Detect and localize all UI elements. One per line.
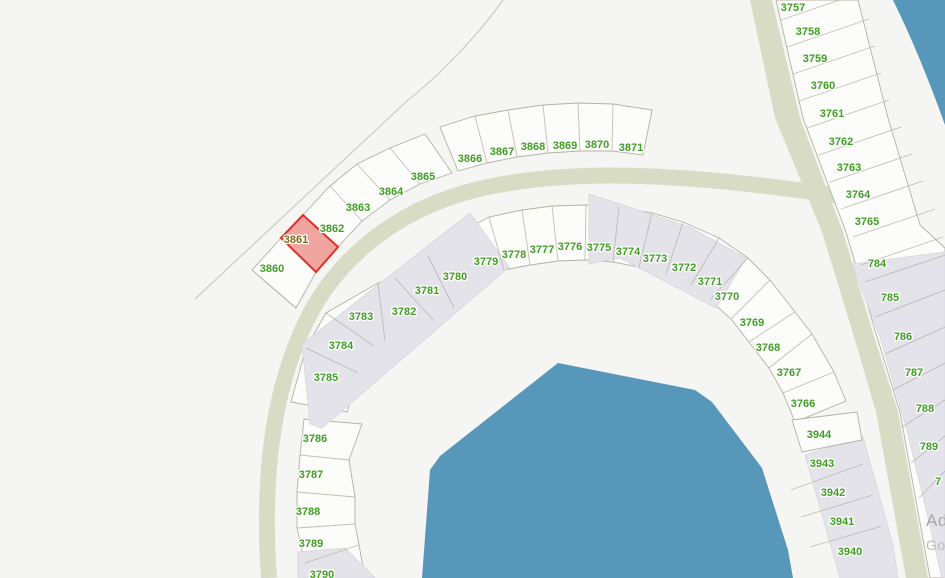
parcel-label-3784: 3784	[329, 340, 354, 352]
highlighted-parcel-label-3861[interactable]: 3861	[284, 234, 308, 246]
parcel-label-3779: 3779	[474, 256, 498, 268]
parcel-label-3780: 3780	[443, 271, 467, 283]
parcel-label-3942: 3942	[821, 487, 845, 499]
parcel-label-3864: 3864	[379, 186, 404, 198]
parcel-label-3866: 3866	[458, 153, 482, 165]
parcel-label-3766: 3766	[791, 398, 815, 410]
parcel-label-3786: 3786	[303, 433, 327, 445]
parcel-label-3789: 3789	[299, 538, 323, 550]
parcel-label-3758: 3758	[796, 26, 820, 38]
parcel-label-3860: 3860	[260, 263, 284, 275]
parcel-label-3862: 3862	[320, 223, 344, 235]
parcel-label-788: 788	[916, 403, 934, 415]
parcel-label-3775: 3775	[587, 242, 611, 254]
parcel-label-3778: 3778	[502, 249, 526, 261]
parcel-label-3871: 3871	[619, 142, 643, 154]
parcel-label-789: 789	[920, 441, 938, 453]
parcel-label-3781: 3781	[415, 285, 439, 297]
parcel-label-3770: 3770	[715, 291, 739, 303]
parcel-label-3788: 3788	[296, 506, 320, 518]
parcel-label-3940: 3940	[838, 546, 862, 558]
parcel-label-3771: 3771	[698, 276, 722, 288]
parcel-label-3943: 3943	[810, 458, 834, 470]
parcel-label-3863: 3863	[346, 202, 370, 214]
parcel-label-3764: 3764	[846, 189, 871, 201]
parcel-label-3761: 3761	[820, 108, 844, 120]
parcel-label-3774: 3774	[616, 246, 641, 258]
parcel-label-786: 786	[894, 331, 912, 343]
parcel-label-3865: 3865	[411, 171, 435, 183]
parcel-label-3769: 3769	[740, 317, 764, 329]
parcel-label-3772: 3772	[672, 262, 696, 274]
parcel-label-3869: 3869	[553, 140, 577, 152]
parcel-label-3760: 3760	[811, 80, 835, 92]
parcel-label-3867: 3867	[490, 146, 514, 158]
parcel-map[interactable]: 3860386138623863386438653866386738683869…	[0, 0, 945, 578]
parcel-label-3785: 3785	[314, 372, 338, 384]
parcel-label-3777: 3777	[530, 244, 554, 256]
parcel-label-785: 785	[881, 292, 899, 304]
parcel-label-3870: 3870	[585, 139, 609, 151]
parcel-label-3768: 3768	[756, 342, 780, 354]
parcel-label-3790: 3790	[310, 569, 334, 578]
parcel-label-3783: 3783	[349, 311, 373, 323]
parcel-label-3787: 3787	[299, 469, 323, 481]
parcel-label-784: 784	[868, 258, 887, 270]
parcel-label-3757: 3757	[781, 2, 805, 14]
parcel-label-3773: 3773	[643, 253, 667, 265]
parcel-label-3944: 3944	[807, 429, 832, 441]
parcel-label-3941: 3941	[830, 516, 854, 528]
parcel-label-7: 7	[935, 476, 941, 488]
parcel-label-3868: 3868	[521, 141, 545, 153]
parcel-label-3765: 3765	[855, 216, 879, 228]
parcel-label-3767: 3767	[777, 367, 801, 379]
parcel-label-3763: 3763	[837, 162, 861, 174]
parcel-label-3762: 3762	[829, 136, 853, 148]
parcel-label-787: 787	[905, 367, 923, 379]
map-canvas[interactable]: 3860386138623863386438653866386738683869…	[0, 0, 945, 578]
parcel-label-3782: 3782	[392, 306, 416, 318]
parcel-label-3759: 3759	[803, 53, 827, 65]
parcel-label-3776: 3776	[558, 241, 582, 253]
